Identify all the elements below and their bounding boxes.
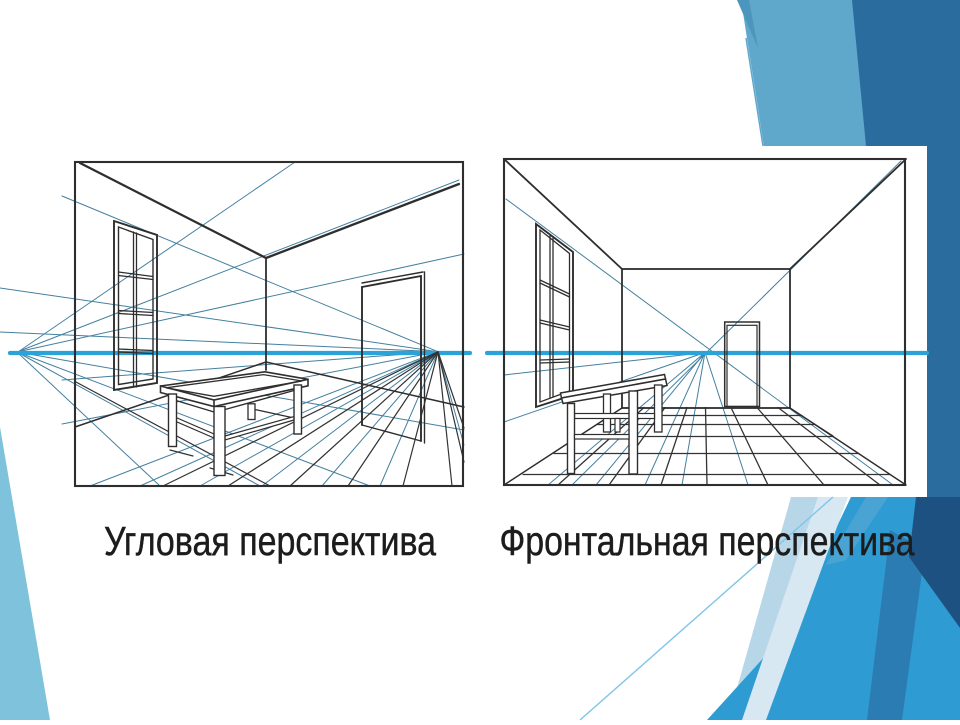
svg-text:Угловая перспектива: Угловая перспектива (104, 518, 436, 564)
svg-text:Фронтальная перспектива: Фронтальная перспектива (500, 518, 915, 564)
